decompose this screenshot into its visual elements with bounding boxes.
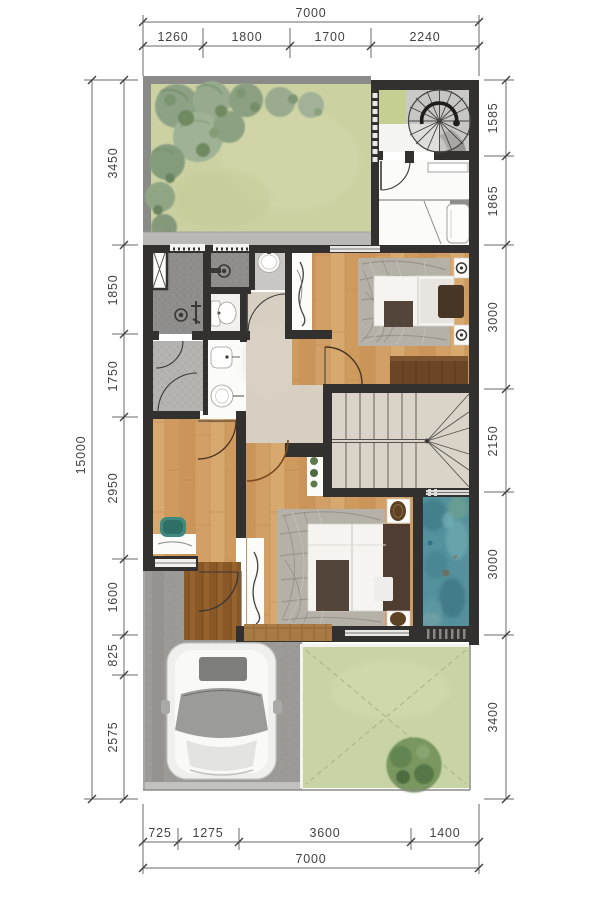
svg-text:3000: 3000 xyxy=(486,548,500,579)
svg-text:1750: 1750 xyxy=(106,360,120,391)
svg-text:2575: 2575 xyxy=(106,721,120,752)
svg-text:3000: 3000 xyxy=(486,301,500,332)
svg-text:1585: 1585 xyxy=(486,102,500,133)
svg-text:3450: 3450 xyxy=(106,147,120,178)
svg-text:1260: 1260 xyxy=(157,30,188,44)
svg-text:7000: 7000 xyxy=(295,852,326,866)
svg-text:1400: 1400 xyxy=(429,826,460,840)
svg-text:1700: 1700 xyxy=(314,30,345,44)
svg-text:15000: 15000 xyxy=(74,436,88,475)
svg-text:725: 725 xyxy=(148,826,171,840)
svg-text:1275: 1275 xyxy=(192,826,223,840)
svg-text:2950: 2950 xyxy=(106,472,120,503)
svg-text:7000: 7000 xyxy=(295,6,326,20)
svg-text:1800: 1800 xyxy=(231,30,262,44)
svg-text:3600: 3600 xyxy=(309,826,340,840)
svg-text:3400: 3400 xyxy=(486,701,500,732)
svg-text:2240: 2240 xyxy=(409,30,440,44)
svg-text:1850: 1850 xyxy=(106,274,120,305)
svg-text:2150: 2150 xyxy=(486,425,500,456)
svg-text:1865: 1865 xyxy=(486,185,500,216)
svg-text:825: 825 xyxy=(106,643,120,666)
svg-text:1600: 1600 xyxy=(106,581,120,612)
